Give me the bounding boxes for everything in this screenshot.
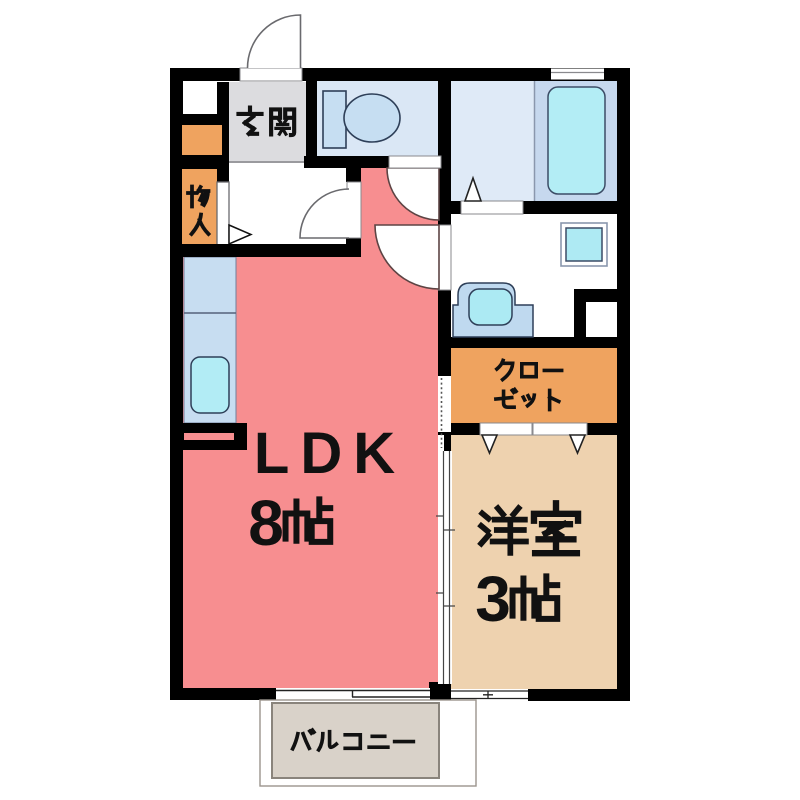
- svg-text:LDK: LDK: [254, 421, 406, 486]
- svg-text:8: 8: [248, 487, 284, 559]
- svg-text:3: 3: [475, 563, 511, 635]
